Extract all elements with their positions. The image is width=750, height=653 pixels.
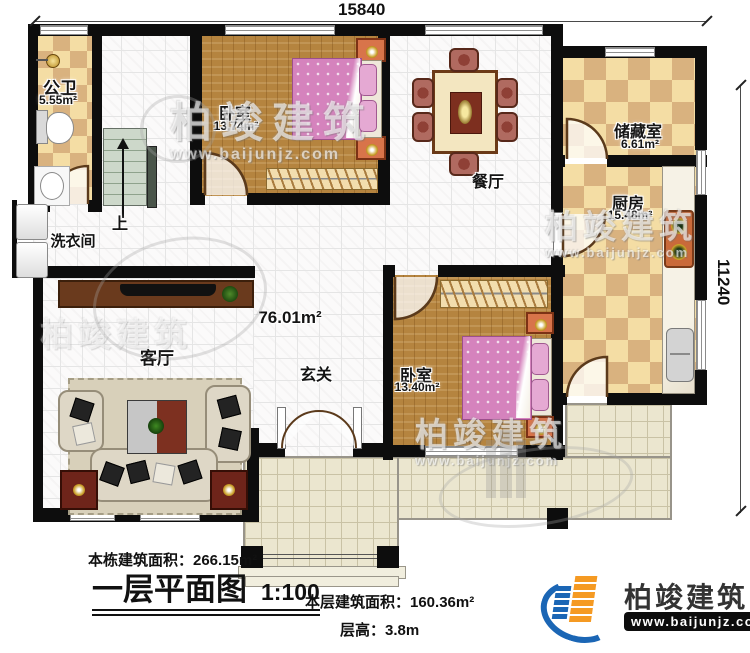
dining-chair-left-1: [412, 78, 434, 108]
company-website: www.baijunjz.com: [624, 612, 750, 631]
porch-railing: [252, 554, 388, 559]
hall-area-label: 76.01m²: [258, 308, 321, 328]
bedroom1-area: 13.74m²: [214, 119, 259, 133]
plan-title-row: 一层平面图 1:100: [92, 574, 320, 616]
bedroom2-area: 13.40m²: [395, 380, 440, 394]
wall-bedroom2-left: [383, 265, 393, 460]
watermark-building-bar-2: [500, 430, 512, 498]
dimension-top-value: 15840: [338, 0, 385, 20]
shower-arm: [36, 59, 48, 61]
storage-window: [605, 47, 655, 57]
toilet-bowl: [46, 112, 74, 144]
watermark-swoosh-top: [140, 95, 216, 163]
dining-chair-right-1: [496, 78, 518, 108]
dining-label: 餐厅: [472, 168, 504, 192]
company-logo: 柏竣建筑 www.baijunjz.com: [538, 570, 748, 640]
shower-head: [46, 54, 60, 68]
foyer-label: 玄关: [300, 361, 332, 385]
company-website-bar: www.baijunjz.com: [624, 612, 750, 631]
bathroom-area: 5.55m²: [39, 93, 77, 107]
washing-machine-1: [16, 204, 48, 240]
kitchen-area: 15.48m²: [608, 208, 653, 222]
washing-machine-2: [16, 242, 48, 278]
wall-bathroom-right: [92, 24, 102, 212]
wall-bedroom1-bottom-l: [190, 193, 205, 205]
stove-burner-1: [671, 218, 687, 234]
wall-living-left: [33, 266, 43, 522]
bedroom2-nightstand-top: [526, 312, 554, 334]
laundry-label: 洗衣间: [50, 230, 95, 251]
bedroom1-sheet-fold: [346, 58, 360, 138]
side-table-left: [60, 470, 98, 510]
side-table-right: [210, 470, 248, 510]
bedroom1-pillow-1: [359, 64, 377, 96]
dimension-right-line: [740, 85, 741, 513]
dimension-top-line: [35, 21, 707, 22]
bathroom-window: [40, 25, 88, 35]
bathroom-sink-basin: [40, 172, 64, 200]
bedroom1-window: [225, 25, 335, 35]
entrance-porch: [243, 456, 399, 568]
dining-centerpiece: [458, 100, 472, 124]
bedroom1-wardrobe: [266, 168, 378, 190]
wall-bedroom1-bottom-r: [247, 193, 390, 205]
porch-column-right: [377, 546, 399, 568]
dimension-right-tick-top: [735, 79, 746, 90]
watermark-building-bar-3: [516, 440, 526, 498]
bedroom2-pillow-1: [531, 343, 549, 375]
bedroom2-door: [395, 277, 437, 319]
bedroom1-door: [205, 153, 247, 195]
kitchen-sink-basin-line: [670, 353, 690, 355]
floor-height: 层高：3.8m: [340, 619, 419, 640]
wall-bedroom2-top-l: [383, 265, 395, 277]
company-name: 柏竣建筑: [624, 576, 748, 616]
storage-door: [567, 119, 607, 159]
kitchen-window-1: [696, 150, 706, 195]
bedroom2-pillow-2: [531, 379, 549, 411]
stove-burner-2: [671, 244, 687, 260]
wall-bathroom-bottom-r: [88, 200, 102, 212]
wall-annex-right-1: [695, 46, 707, 150]
kitchen-door: [563, 214, 605, 256]
entrance-double-door: [281, 409, 357, 449]
wall-storage-bottom-l: [551, 155, 565, 167]
dimension-right-value: 11240: [713, 259, 733, 305]
wall-annex-right-2: [695, 195, 707, 300]
company-logo-icon: [538, 570, 620, 640]
kitchen-sink: [666, 328, 694, 382]
total-building-area: 本栋建筑面积：266.15m²: [88, 549, 257, 570]
sofa-main: [90, 448, 218, 502]
stairs-up-label: 上: [112, 210, 128, 234]
wall-kitchen-bottom-l: [551, 393, 567, 405]
kitchen-window-2: [696, 300, 706, 370]
dining-chair-right-2: [496, 112, 518, 142]
watermark-building-bar-1: [486, 440, 496, 498]
coffee-table-plant: [148, 418, 164, 434]
dimension-right-tick-bottom: [735, 505, 746, 516]
armchair-left: [58, 390, 104, 452]
plan-title: 一层平面图: [92, 574, 247, 605]
kitchen-door-leaf: [553, 212, 563, 256]
wall-bedroom2-bottom-l: [383, 445, 425, 457]
dining-window: [425, 25, 543, 35]
floor-area: 本层建筑面积：160.36m²: [305, 591, 474, 612]
bedroom2-wardrobe: [440, 280, 548, 308]
stairs-direction-arrowhead: [117, 138, 129, 149]
kitchen-terrace-door: [567, 357, 607, 397]
dining-chair-left-2: [412, 112, 434, 142]
dining-chair-top: [449, 48, 479, 72]
storage-area: 6.61m²: [621, 137, 659, 151]
wall-bedroom2-top-r: [438, 265, 565, 277]
wall-kitchen-bottom-r: [607, 393, 707, 405]
bedroom2-sheet-fold: [516, 336, 530, 418]
stairs-direction-line: [122, 148, 124, 218]
bedroom1-pillow-2: [359, 100, 377, 132]
